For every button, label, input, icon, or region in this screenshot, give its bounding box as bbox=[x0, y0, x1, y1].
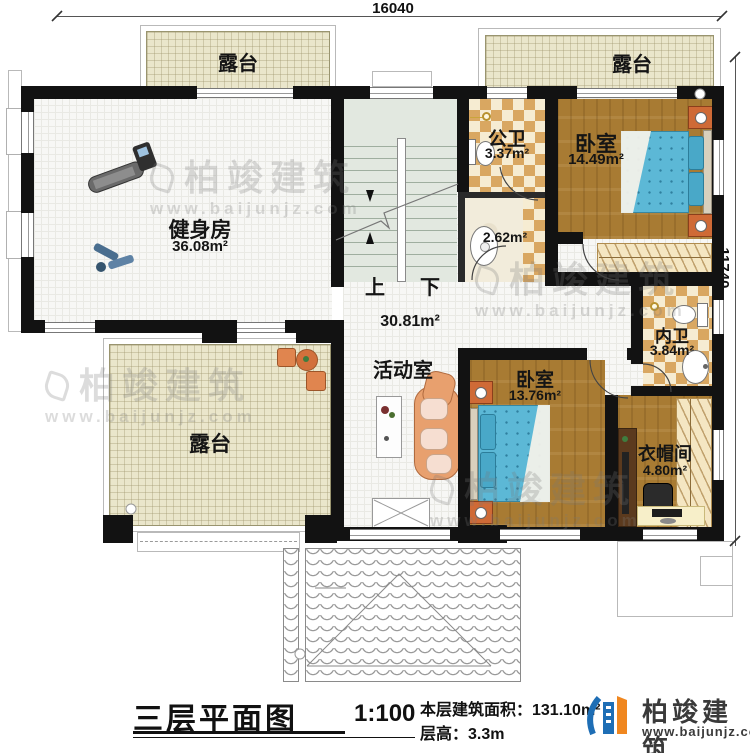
bed2-nightstand-2 bbox=[468, 501, 493, 524]
sofa-cushion-1 bbox=[420, 398, 448, 420]
bedroom1-area: 14.49m² bbox=[550, 151, 642, 168]
coffee-table bbox=[376, 396, 402, 458]
title-underline-thick bbox=[133, 731, 345, 734]
stair-stringer bbox=[397, 138, 406, 282]
bedroom1-terrace-door bbox=[577, 88, 677, 98]
eave-top-stair bbox=[372, 71, 432, 87]
wall bbox=[463, 192, 545, 198]
gym-window-1 bbox=[21, 112, 34, 153]
floor-area-text: 本层建筑面积：131.10m² bbox=[420, 696, 601, 720]
watermark-logo-icon bbox=[42, 370, 73, 402]
bed2-pillow-1 bbox=[480, 414, 496, 450]
gym-floor bbox=[34, 98, 332, 322]
bedroom2-area: 13.76m² bbox=[490, 387, 580, 403]
terrace-top-left-label: 露台 bbox=[146, 47, 330, 76]
shower-area: 2.62m² bbox=[470, 229, 540, 245]
keyboard bbox=[652, 509, 682, 517]
mouse bbox=[660, 518, 676, 524]
wall bbox=[21, 153, 34, 213]
light-fixture bbox=[482, 112, 491, 121]
wall bbox=[605, 395, 618, 528]
flower-2 bbox=[389, 412, 395, 418]
wall bbox=[458, 192, 465, 282]
sofa-cushion-2 bbox=[420, 428, 448, 450]
window-sill-left-1 bbox=[6, 108, 22, 155]
gym-window-2 bbox=[21, 213, 34, 257]
wall bbox=[545, 86, 558, 272]
wall bbox=[21, 86, 197, 99]
bedroom1-window bbox=[713, 140, 724, 195]
bed1-headboard bbox=[703, 130, 712, 214]
bed1-nightstand-2 bbox=[688, 214, 714, 237]
flower-3 bbox=[384, 436, 389, 441]
plan-scale: 1:100 bbox=[354, 700, 415, 728]
bath-window bbox=[487, 87, 527, 99]
pillar bbox=[202, 331, 237, 343]
terrace-door-window bbox=[197, 88, 293, 98]
wall bbox=[331, 95, 344, 287]
activity-area: 30.81m² bbox=[355, 313, 465, 331]
wall bbox=[21, 86, 34, 112]
bedroom2-window bbox=[500, 529, 580, 540]
cloakroom-window-2 bbox=[643, 529, 697, 540]
terrace-top-right-label: 露台 bbox=[540, 48, 724, 77]
floor-hatch bbox=[372, 498, 430, 528]
bed1-nightstand-1 bbox=[688, 106, 714, 129]
gym-area: 36.08m² bbox=[150, 238, 250, 255]
bedroom1-wardrobe-rail bbox=[599, 257, 710, 258]
floor-plan-canvas: 16040 11740 露台 露台 露台 bbox=[0, 0, 750, 753]
gym-window-3 bbox=[45, 322, 95, 333]
activity-window bbox=[350, 529, 450, 540]
stairs-up-label: 上 bbox=[360, 271, 390, 300]
gym-terrace-door bbox=[237, 322, 285, 333]
terrace-chair-2 bbox=[306, 371, 326, 391]
roof-strip bbox=[283, 548, 299, 682]
wall bbox=[545, 272, 724, 286]
dimension-top-value: 16040 bbox=[358, 0, 428, 17]
wall bbox=[631, 386, 724, 396]
bed2-pillow-2 bbox=[480, 452, 496, 488]
floor-height-text: 层高：3.3m bbox=[420, 720, 504, 744]
bath-knob bbox=[650, 302, 659, 311]
eave-detail-bottom-right bbox=[700, 556, 733, 586]
public-bath-area: 3.37m² bbox=[468, 145, 546, 161]
bedroom1-wardrobe bbox=[597, 243, 712, 274]
stairs-down-label: 下 bbox=[415, 271, 445, 300]
stair-window bbox=[370, 87, 433, 99]
wall bbox=[21, 257, 34, 333]
roof-tiles bbox=[305, 548, 521, 682]
inner-bath-area: 3.84m² bbox=[638, 342, 706, 358]
terrace-chair-1 bbox=[277, 348, 296, 367]
brand-logo-icon bbox=[583, 688, 635, 740]
bed1-pillow-2 bbox=[688, 172, 704, 206]
activity-label: 活动室 bbox=[343, 354, 463, 383]
title-underline-thin bbox=[133, 737, 415, 738]
inner-bath-window bbox=[713, 300, 724, 334]
terrace-bottom-label: 露台 bbox=[150, 428, 270, 458]
window-sill-left-2 bbox=[6, 211, 22, 259]
cloakroom-area: 4.80m² bbox=[618, 462, 712, 478]
pillar-terrace-sw bbox=[103, 515, 133, 543]
brand-name: 柏竣建筑 bbox=[642, 692, 750, 753]
wall bbox=[458, 348, 587, 360]
faucet bbox=[703, 364, 708, 369]
dimension-line-right bbox=[735, 57, 736, 546]
brand-site: www.baijunjz.com bbox=[642, 724, 750, 739]
bed1-pillow-1 bbox=[688, 136, 704, 170]
sofa-cushion-3 bbox=[426, 454, 452, 474]
wall bbox=[557, 232, 583, 244]
pillar bbox=[296, 331, 333, 343]
terrace-plant bbox=[303, 356, 309, 362]
dumbbell-plate bbox=[96, 262, 106, 272]
terrace-railing-dash bbox=[140, 541, 297, 542]
bed2-headboard bbox=[470, 408, 478, 500]
terrace-railing bbox=[137, 532, 300, 552]
cloakroom-window bbox=[713, 430, 724, 480]
flower-1 bbox=[381, 406, 389, 414]
